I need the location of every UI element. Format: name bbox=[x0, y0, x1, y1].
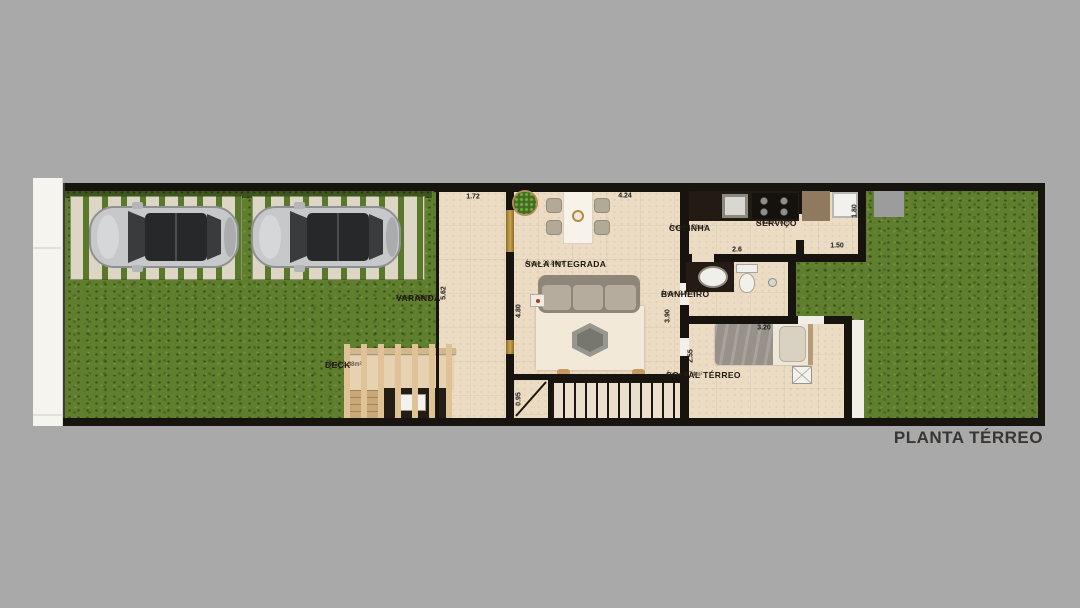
lot-border-left bbox=[63, 183, 65, 426]
dining-chair bbox=[546, 198, 562, 213]
staircase bbox=[552, 380, 688, 418]
sidewalk-seam bbox=[33, 247, 63, 249]
dim-stair-width: 0.95 bbox=[516, 392, 523, 406]
lot-border-right bbox=[1038, 183, 1045, 426]
deck-area bbox=[344, 344, 456, 420]
dim-cozinha-width: 2.6 bbox=[732, 247, 742, 254]
door-opening bbox=[692, 254, 714, 262]
bathroom-sink bbox=[698, 266, 728, 288]
side-walkway bbox=[850, 320, 864, 418]
dim-social-width: 3.20 bbox=[757, 325, 771, 332]
servico-right-wall bbox=[858, 191, 866, 258]
door-opening bbox=[798, 316, 824, 324]
stair-side-wall bbox=[548, 378, 552, 418]
sofa-cushion bbox=[573, 285, 603, 310]
room-area: Área= 7.46m² bbox=[396, 294, 433, 302]
floor-plan-canvas: VARANDA Área= 7.46m² SALA INTEGRADA Área… bbox=[0, 0, 1080, 608]
room-area: Área= 2.98m² bbox=[661, 290, 698, 298]
room-area: Área= 4.70m² bbox=[669, 224, 706, 232]
side-table bbox=[530, 294, 545, 307]
dining-chair bbox=[594, 198, 610, 213]
dining-chair bbox=[546, 220, 562, 235]
dim-varanda-depth: 5.62 bbox=[441, 286, 448, 300]
coffee-table-inner bbox=[577, 328, 603, 352]
nightstand bbox=[792, 366, 812, 384]
decor-dot bbox=[536, 299, 540, 303]
dining-centerpiece bbox=[572, 210, 584, 222]
laundry-counter bbox=[802, 191, 830, 221]
pergola-slats bbox=[344, 344, 456, 420]
sofa-cushion bbox=[605, 285, 636, 310]
bed-pillow bbox=[779, 326, 806, 362]
social-top-wall bbox=[680, 316, 852, 324]
lot-border-bottom bbox=[63, 418, 1045, 426]
room-area: Área= 2.70m² bbox=[756, 219, 793, 227]
dim-hall-depth: 3.90 bbox=[665, 309, 672, 323]
plan-title: PLANTA TÉRREO bbox=[894, 428, 1043, 448]
bed-headboard bbox=[808, 323, 813, 365]
dim-sala-width: 4.24 bbox=[618, 193, 632, 200]
social-right-wall bbox=[844, 316, 852, 424]
dim-sala-depth: 4.80 bbox=[516, 304, 523, 318]
sala-bottom-wall bbox=[514, 374, 689, 380]
banheiro-right-wall bbox=[788, 254, 796, 324]
cooktop bbox=[752, 193, 798, 219]
kitchen-sink bbox=[722, 194, 748, 218]
sidewalk bbox=[33, 178, 63, 426]
potted-plant bbox=[512, 190, 538, 216]
dim-servico-width: 1.50 bbox=[830, 243, 844, 250]
sidewalk-seam bbox=[33, 414, 63, 416]
toilet-bowl bbox=[739, 273, 755, 293]
plant-foliage bbox=[514, 192, 536, 214]
room-area: Área= 3.38m² bbox=[325, 361, 362, 369]
varanda-left-wall bbox=[436, 191, 439, 418]
dim-varanda-width: 1.72 bbox=[466, 194, 480, 201]
dim-servico-depth: 1.80 bbox=[852, 204, 859, 218]
car-top-view bbox=[88, 202, 240, 272]
concrete-patch bbox=[874, 190, 904, 217]
glass-door-gold bbox=[506, 210, 514, 252]
dim-social-depth: 2.55 bbox=[688, 349, 695, 363]
sofa-cushion bbox=[542, 285, 571, 310]
gold-door-jamb bbox=[506, 340, 514, 354]
shower-control bbox=[768, 278, 777, 287]
room-area: Área= 20.86m² bbox=[525, 260, 565, 268]
car-top-view bbox=[250, 202, 402, 272]
room-area: Área= 8.74m² bbox=[666, 371, 703, 379]
dining-chair bbox=[594, 220, 610, 235]
toilet-tank bbox=[736, 264, 758, 273]
sofa bbox=[538, 275, 640, 313]
